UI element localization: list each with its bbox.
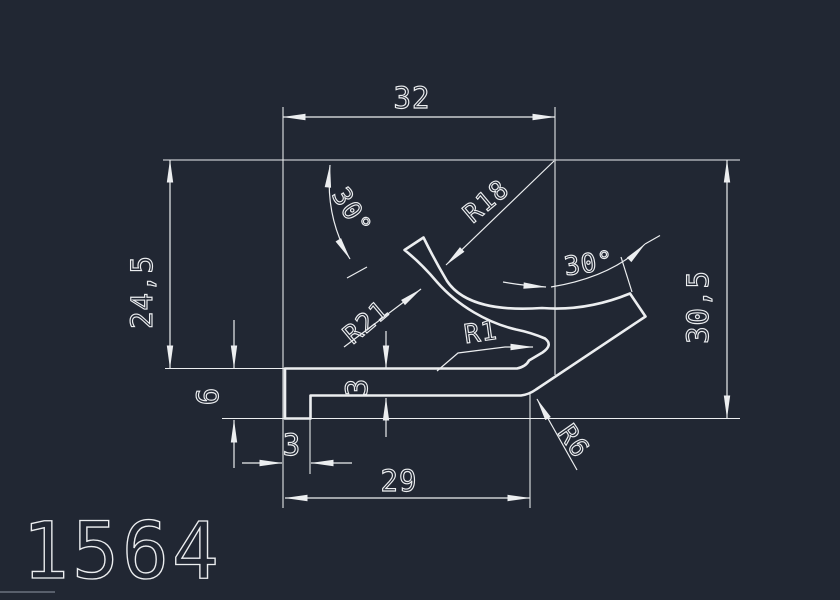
radius-label-arm-inner: R21: [338, 295, 396, 350]
dimension-radius-arm-inner: R21: [338, 289, 421, 350]
dimension-radius-heel: R6: [537, 399, 595, 470]
angle-label-left: 30°: [325, 182, 377, 240]
angle-arc-right-inner: [503, 282, 546, 287]
dimension-foot-width: 3: [242, 428, 352, 463]
dimension-label-base-length: 29: [381, 464, 418, 498]
dimension-base-thickness: 3: [340, 331, 386, 437]
dimension-label-base-thickness: 3: [340, 378, 374, 396]
dimension-label-foot-height: 6: [191, 387, 225, 405]
dimension-left-height: 24,5: [125, 160, 170, 368]
dimension-top-width: 32: [283, 81, 555, 117]
dimension-angle-left: 30°: [325, 165, 377, 278]
dimension-label-top-width: 32: [394, 81, 431, 115]
angle-tail-right: [645, 236, 660, 245]
dimension-base-length: 29: [285, 464, 530, 498]
cad-drawing: 32 24,5 30,5 6 3 3: [0, 0, 840, 600]
angle-tick-right: [621, 257, 632, 292]
dimension-radius-arm-outer: R18: [446, 161, 554, 265]
dimension-label-left-height: 24,5: [125, 255, 159, 329]
angle-tick-left: [347, 267, 367, 278]
cad-viewport: 32 24,5 30,5 6 3 3: [0, 0, 840, 600]
radius-label-lip: R1: [462, 316, 499, 350]
radius-label-arm-outer: R18: [458, 174, 516, 229]
dimension-label-foot-width: 3: [283, 428, 301, 462]
dimension-angle-right: 30°: [503, 236, 660, 293]
dimension-foot-height: 6: [191, 320, 234, 468]
dimension-radius-lip: R1: [437, 316, 533, 371]
dimension-right-height: 30,5: [681, 160, 727, 418]
dimension-label-right-height: 30,5: [681, 270, 715, 344]
part-number-label: 1564: [22, 507, 222, 597]
angle-label-right: 30°: [562, 246, 616, 283]
radius-label-heel: R6: [551, 419, 595, 463]
